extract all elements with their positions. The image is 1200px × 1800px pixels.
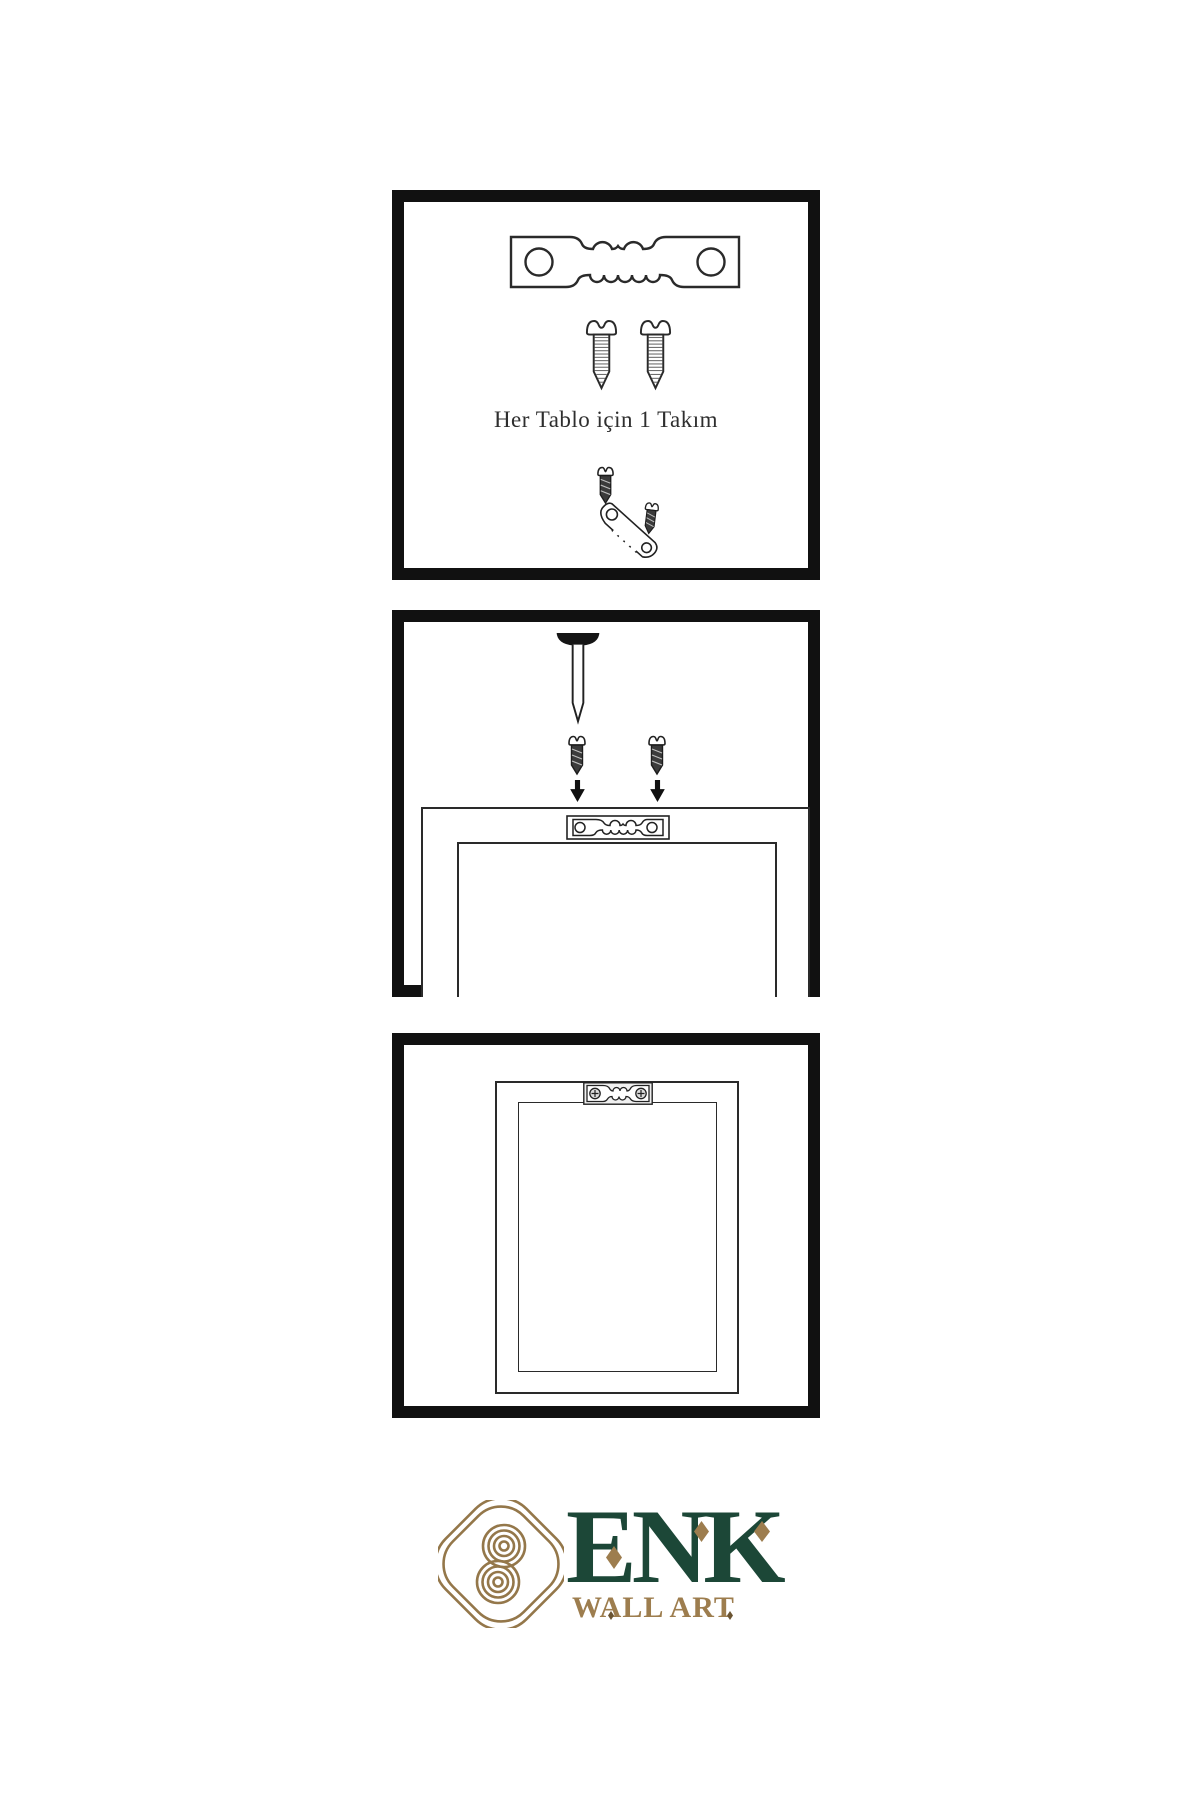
arrow-down-icon bbox=[570, 780, 585, 802]
mounted-sawtooth-plate-icon bbox=[583, 1082, 653, 1105]
panel-hardware-kit: Her Tablo için 1 Takım bbox=[392, 190, 820, 580]
instruction-sheet: Her Tablo için 1 Takım bbox=[0, 0, 1200, 1800]
arrow-down-icon bbox=[650, 780, 665, 802]
sawtooth-plate-icon bbox=[566, 815, 670, 840]
nail-icon bbox=[554, 633, 602, 730]
screw-dark-icon bbox=[640, 501, 661, 537]
screw-dark-icon bbox=[596, 466, 615, 506]
frame-back-inner-edge bbox=[457, 842, 777, 997]
panel-mounting-step bbox=[392, 610, 820, 997]
brand-subtitle: WALL ART bbox=[572, 1593, 735, 1623]
frame-back-inner-edge bbox=[518, 1102, 717, 1372]
brand-name: ENK bbox=[566, 1494, 781, 1600]
screw-dark-icon bbox=[567, 735, 587, 777]
screw-dark-icon bbox=[647, 735, 667, 777]
assembly-cluster bbox=[404, 202, 808, 568]
panel-hanging-step bbox=[392, 1033, 820, 1418]
knot-emblem-icon bbox=[438, 1500, 564, 1628]
